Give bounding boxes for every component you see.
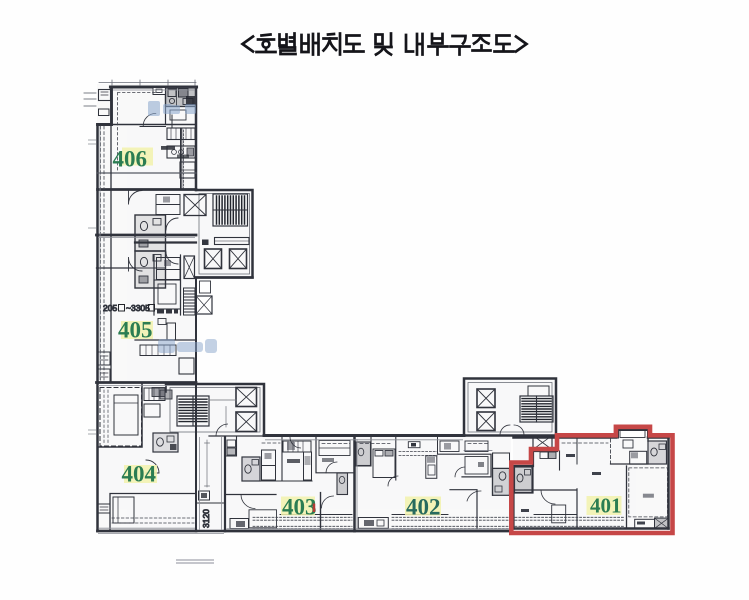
svg-text:401: 401	[590, 494, 622, 518]
svg-text:405: 405	[118, 318, 153, 343]
svg-text:3120: 3120	[201, 509, 211, 528]
svg-text:403: 403	[282, 495, 317, 520]
svg-text:404: 404	[122, 462, 157, 487]
svg-text:402: 402	[406, 495, 441, 520]
svg-text:~3305: ~3305	[126, 303, 150, 313]
svg-text:205: 205	[103, 303, 117, 313]
svg-text:406: 406	[113, 147, 148, 172]
